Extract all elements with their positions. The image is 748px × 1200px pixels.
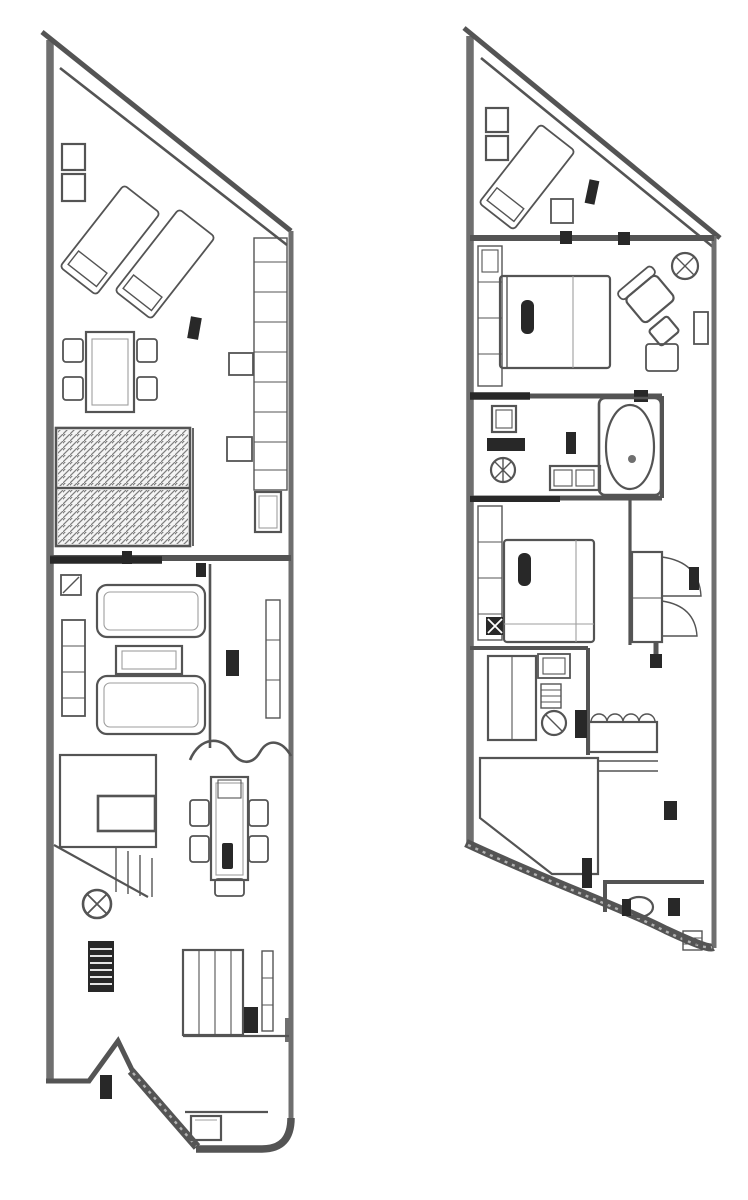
landing-edge (598, 761, 658, 771)
slatted-pergola-deck (56, 428, 190, 546)
door-marker (226, 650, 239, 676)
washbasin (538, 654, 570, 678)
door-leaf-marker (100, 1075, 112, 1099)
side-table (694, 312, 708, 344)
wardrobe (632, 552, 662, 642)
terrace-living-wall (50, 551, 291, 577)
floor-plans-drawing (0, 0, 748, 1200)
outdoor-chair (63, 339, 83, 362)
terrace (470, 108, 714, 245)
side-table (551, 199, 573, 223)
outdoor-dining-set (63, 332, 157, 412)
dining-chair (249, 800, 268, 826)
door-leaf-marker (187, 316, 202, 340)
closet-run (478, 246, 502, 386)
planter-box (62, 144, 85, 170)
wall-stub (487, 438, 525, 451)
appliance (244, 1007, 258, 1033)
bathroom-1 (470, 390, 662, 499)
planter-box (486, 136, 508, 160)
door-marker (664, 801, 677, 820)
dining-chair (190, 800, 209, 826)
door-marker (634, 390, 648, 402)
door-marker (668, 898, 680, 916)
floor-plan-bedroom-level (464, 28, 720, 950)
pillow (521, 300, 534, 334)
bookshelf (62, 620, 85, 716)
door-marker (650, 654, 662, 668)
stair-hall (54, 755, 156, 992)
nightstand (486, 617, 504, 635)
centerpiece (222, 843, 233, 869)
exterior-walls (42, 32, 293, 1149)
bedroom-2 (478, 498, 701, 668)
side-table (229, 353, 253, 375)
door-leaf-marker (585, 179, 600, 205)
towel-radiator (541, 684, 561, 708)
floor-opening-break-line (190, 741, 291, 762)
wall-stub (566, 432, 576, 454)
outdoor-table (86, 332, 134, 412)
floor-plan-living-level (42, 32, 293, 1149)
door-marker (689, 567, 699, 590)
media-cabinet (266, 600, 280, 718)
roof-terrace (56, 144, 287, 546)
coffee-table (116, 646, 182, 674)
entry-mat (191, 1116, 221, 1140)
planter-box (62, 174, 85, 201)
dining-chair (249, 836, 268, 862)
sofa (97, 676, 205, 734)
bathroom-2 (470, 648, 657, 755)
stair-landing (98, 796, 155, 831)
door-marker (560, 231, 572, 244)
double-bed (504, 540, 594, 642)
floor-drain (61, 575, 81, 595)
bedroom-1 (478, 246, 708, 386)
toilet (542, 711, 566, 735)
outdoor-chair (137, 377, 157, 400)
door-marker (122, 551, 132, 564)
ceiling-light-icon (672, 253, 698, 279)
side-table (227, 437, 252, 461)
bottom-wall (196, 1118, 291, 1149)
dining-area (190, 777, 268, 896)
dining-chair (215, 879, 244, 896)
rug (646, 344, 678, 371)
toilet (491, 458, 515, 482)
door-leaf-marker (582, 858, 592, 888)
scanned-floorplan-sheet (0, 0, 748, 1200)
shower-enclosure (488, 656, 536, 740)
stair-hall (480, 758, 677, 888)
wall-window-segment (285, 1018, 293, 1042)
sun-lounger (479, 124, 575, 230)
railing-shelf (254, 238, 287, 532)
kitchen (183, 950, 289, 1140)
outdoor-chair (137, 339, 157, 362)
column-light-icon (83, 890, 111, 918)
vanity-double-basin (550, 466, 600, 490)
dining-chair (190, 836, 209, 862)
door-marker (575, 710, 587, 738)
corridor-wall-mid (630, 498, 662, 645)
bathtub (599, 398, 661, 495)
towel-shelf-counter (589, 714, 657, 752)
stair-up-line (54, 845, 148, 897)
sun-lounger (115, 209, 215, 319)
radiator (88, 941, 114, 992)
double-bed (500, 276, 610, 368)
drain (628, 455, 636, 463)
sloped-top-wall-inner (60, 68, 287, 245)
sofa (97, 585, 205, 637)
staircase (54, 755, 156, 897)
living-room (61, 564, 280, 748)
wall-shelf (262, 951, 273, 1031)
door-marker (196, 563, 206, 577)
exterior-walls (464, 28, 720, 948)
planter-box (486, 108, 508, 132)
entry-notch-wall (46, 1041, 133, 1081)
ottoman (648, 316, 679, 347)
washer-unit (492, 406, 516, 432)
door-marker (618, 232, 630, 245)
pillow (518, 553, 531, 586)
outdoor-chair (63, 377, 83, 400)
kitchen-cabinet-run (183, 950, 243, 1035)
